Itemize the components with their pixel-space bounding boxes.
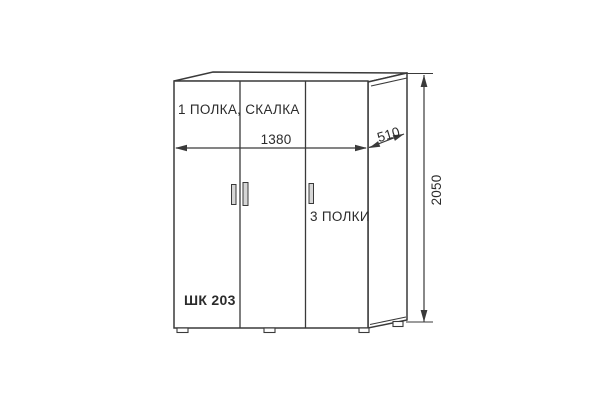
wardrobe-foot-back xyxy=(393,322,403,327)
door-handle-left xyxy=(232,185,237,205)
wardrobe-front-face xyxy=(174,81,368,328)
wardrobe-side-panel xyxy=(368,73,407,328)
door-handle-middle xyxy=(243,183,248,206)
annotation-shelves: 3 ПОЛКИ xyxy=(310,209,370,224)
width-dimension-value: 1380 xyxy=(261,132,292,147)
height-arrow-top xyxy=(421,75,428,87)
door-handle-right xyxy=(309,184,314,204)
height-dimension-value: 2050 xyxy=(429,175,444,206)
wardrobe-drawing: 1 ПОЛКА, СКАЛКА 3 ПОЛКИ ШК 203 1380 510 … xyxy=(0,0,600,405)
wardrobe-foot-left xyxy=(177,328,188,333)
height-arrow-bottom xyxy=(421,310,428,322)
furniture-diagram: 1 ПОЛКА, СКАЛКА 3 ПОЛКИ ШК 203 1380 510 … xyxy=(0,0,600,405)
wardrobe-foot-right xyxy=(359,328,369,333)
product-code-label: ШК 203 xyxy=(184,292,236,308)
wardrobe-foot-middle xyxy=(264,328,275,333)
annotation-top-shelf: 1 ПОЛКА, СКАЛКА xyxy=(178,102,300,117)
